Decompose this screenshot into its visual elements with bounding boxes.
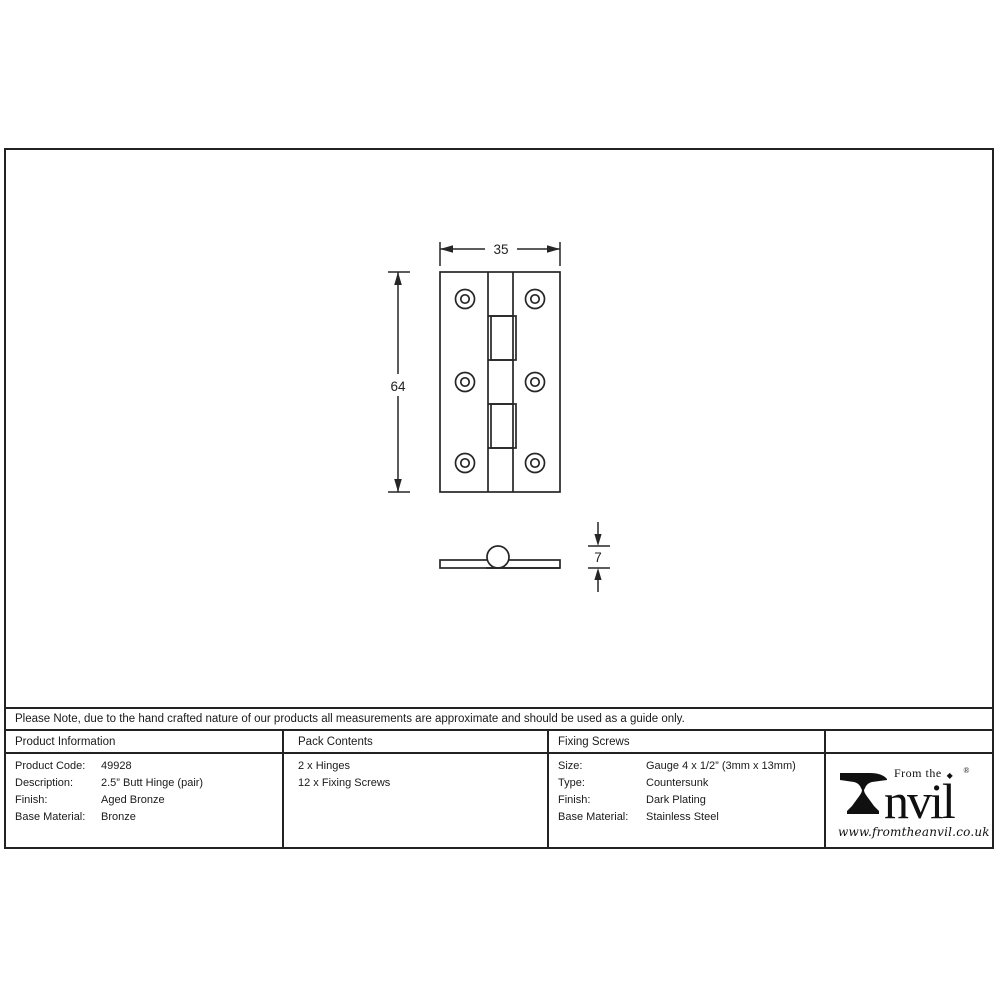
- height-dimension-label: 64: [390, 379, 406, 394]
- logo-name: nvil: [884, 784, 970, 818]
- spec-sheet-page: 35 64 7 Please Note, due to the hand cra…: [0, 0, 1000, 1000]
- hinge-front-view: [440, 272, 560, 492]
- table-row: Type: Countersunk: [558, 775, 824, 792]
- field-value: 49928: [101, 758, 132, 775]
- fixing-screws-header: Fixing Screws: [547, 731, 824, 752]
- brand-logo-cell: From the ◆ ® nvil www.fromtheanvil.co.uk: [824, 754, 992, 847]
- fixing-screws-cell: Size: Gauge 4 x 1/2” (3mm x 13mm) Type: …: [547, 754, 824, 847]
- spec-sheet-frame: 35 64 7 Please Note, due to the hand cra…: [4, 148, 994, 849]
- spec-table-content-row: Product Code: 49928 Description: 2.5” Bu…: [6, 754, 992, 847]
- field-label: Description:: [15, 775, 101, 792]
- pack-contents-line: 2 x Hinges: [298, 758, 547, 775]
- note-row: Please Note, due to the hand crafted nat…: [6, 707, 992, 731]
- pack-contents-cell: 2 x Hinges 12 x Fixing Screws: [282, 754, 547, 847]
- width-dimension-label: 35: [493, 242, 508, 257]
- from-the-anvil-logo: From the ◆ ® nvil www.fromtheanvil.co.uk: [838, 765, 980, 841]
- table-row: Finish: Aged Bronze: [15, 792, 282, 809]
- spec-table-header-row: Product Information Pack Contents Fixing…: [6, 731, 992, 754]
- screw-hole: [456, 290, 475, 309]
- anvil-icon: [838, 768, 888, 814]
- field-label: Base Material:: [558, 809, 646, 826]
- field-value: Countersunk: [646, 775, 708, 792]
- pack-contents-header: Pack Contents: [282, 731, 547, 752]
- table-row: Finish: Dark Plating: [558, 792, 824, 809]
- registered-mark: ®: [963, 762, 970, 779]
- field-value: Aged Bronze: [101, 792, 165, 809]
- field-value: Gauge 4 x 1/2” (3mm x 13mm): [646, 758, 796, 775]
- screw-hole: [526, 454, 545, 473]
- table-row: Size: Gauge 4 x 1/2” (3mm x 13mm): [558, 758, 824, 775]
- field-label: Product Code:: [15, 758, 101, 775]
- field-value: Stainless Steel: [646, 809, 719, 826]
- thickness-dimension-label: 7: [594, 550, 602, 565]
- note-text: Please Note, due to the hand crafted nat…: [15, 713, 685, 725]
- field-label: Type:: [558, 775, 646, 792]
- hinge-technical-drawing: 35 64 7: [6, 150, 992, 707]
- field-label: Size:: [558, 758, 646, 775]
- field-value: Bronze: [101, 809, 136, 826]
- screw-hole: [456, 454, 475, 473]
- table-row: Description: 2.5” Butt Hinge (pair): [15, 775, 282, 792]
- product-info-header: Product Information: [6, 731, 282, 752]
- screw-hole: [526, 290, 545, 309]
- hinge-side-view: [440, 546, 560, 568]
- screw-hole: [526, 373, 545, 392]
- dimension-arrowheads: [394, 245, 601, 580]
- field-label: Base Material:: [15, 809, 101, 826]
- field-label: Finish:: [558, 792, 646, 809]
- logo-url: www.fromtheanvil.co.uk: [838, 824, 980, 841]
- table-row: Base Material: Stainless Steel: [558, 809, 824, 826]
- logo-header-cell: [824, 731, 992, 752]
- table-row: Product Code: 49928: [15, 758, 282, 775]
- technical-drawing-area: 35 64 7: [6, 150, 992, 707]
- product-info-cell: Product Code: 49928 Description: 2.5” Bu…: [6, 754, 282, 847]
- field-value: 2.5” Butt Hinge (pair): [101, 775, 203, 792]
- pack-contents-line: 12 x Fixing Screws: [298, 775, 547, 792]
- field-label: Finish:: [15, 792, 101, 809]
- knuckle-profile: [487, 546, 509, 568]
- screw-hole: [456, 373, 475, 392]
- field-value: Dark Plating: [646, 792, 706, 809]
- table-row: Base Material: Bronze: [15, 809, 282, 826]
